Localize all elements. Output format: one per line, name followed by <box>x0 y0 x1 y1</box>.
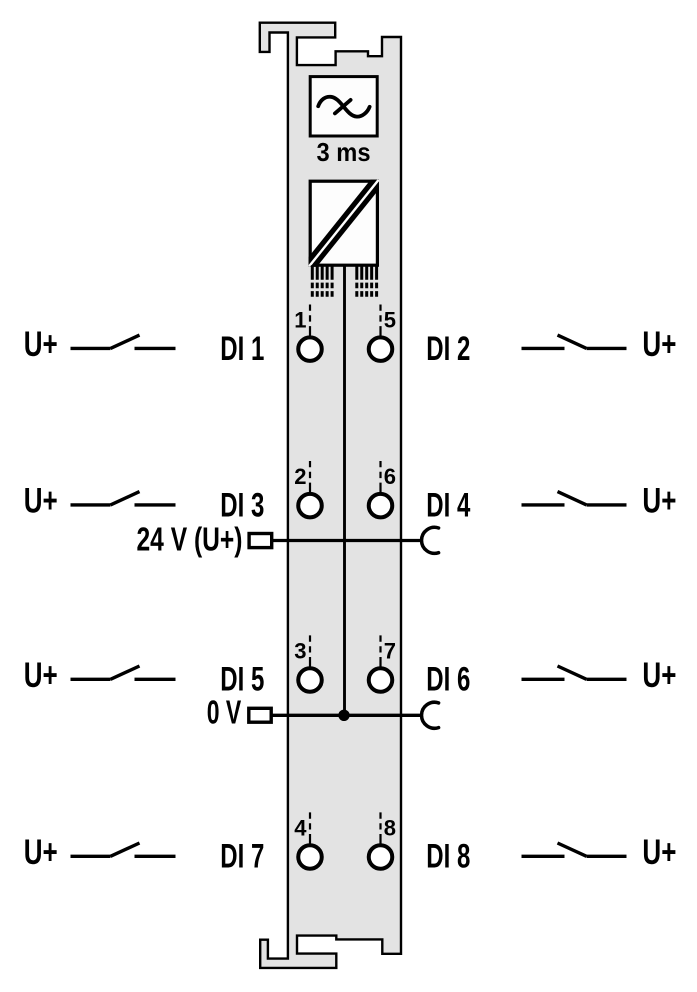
svg-text:U+: U+ <box>642 481 676 520</box>
svg-text:24 V (U+): 24 V (U+) <box>137 520 243 557</box>
svg-text:U+: U+ <box>642 656 676 695</box>
svg-text:DI 7: DI 7 <box>220 838 264 876</box>
svg-text:DI 1: DI 1 <box>220 330 264 368</box>
svg-text:DI 6: DI 6 <box>426 661 470 699</box>
svg-text:0 V: 0 V <box>207 694 242 731</box>
svg-text:3: 3 <box>294 639 306 664</box>
svg-text:4: 4 <box>294 816 307 841</box>
svg-text:U+: U+ <box>24 481 58 520</box>
svg-text:DI 3: DI 3 <box>220 486 264 524</box>
svg-text:U+: U+ <box>24 325 58 364</box>
svg-text:2: 2 <box>294 464 306 489</box>
svg-text:U+: U+ <box>642 833 676 872</box>
svg-text:5: 5 <box>384 308 396 333</box>
svg-text:DI 2: DI 2 <box>426 330 470 368</box>
svg-text:6: 6 <box>384 464 396 489</box>
svg-text:DI 4: DI 4 <box>426 486 470 524</box>
svg-text:DI 5: DI 5 <box>220 661 264 699</box>
svg-text:U+: U+ <box>642 325 676 364</box>
svg-text:3 ms: 3 ms <box>317 137 371 167</box>
svg-text:U+: U+ <box>24 833 58 872</box>
svg-text:DI 8: DI 8 <box>426 838 470 876</box>
svg-text:U+: U+ <box>24 656 58 695</box>
svg-text:1: 1 <box>294 308 306 333</box>
svg-text:8: 8 <box>384 816 396 841</box>
svg-text:7: 7 <box>384 639 396 664</box>
